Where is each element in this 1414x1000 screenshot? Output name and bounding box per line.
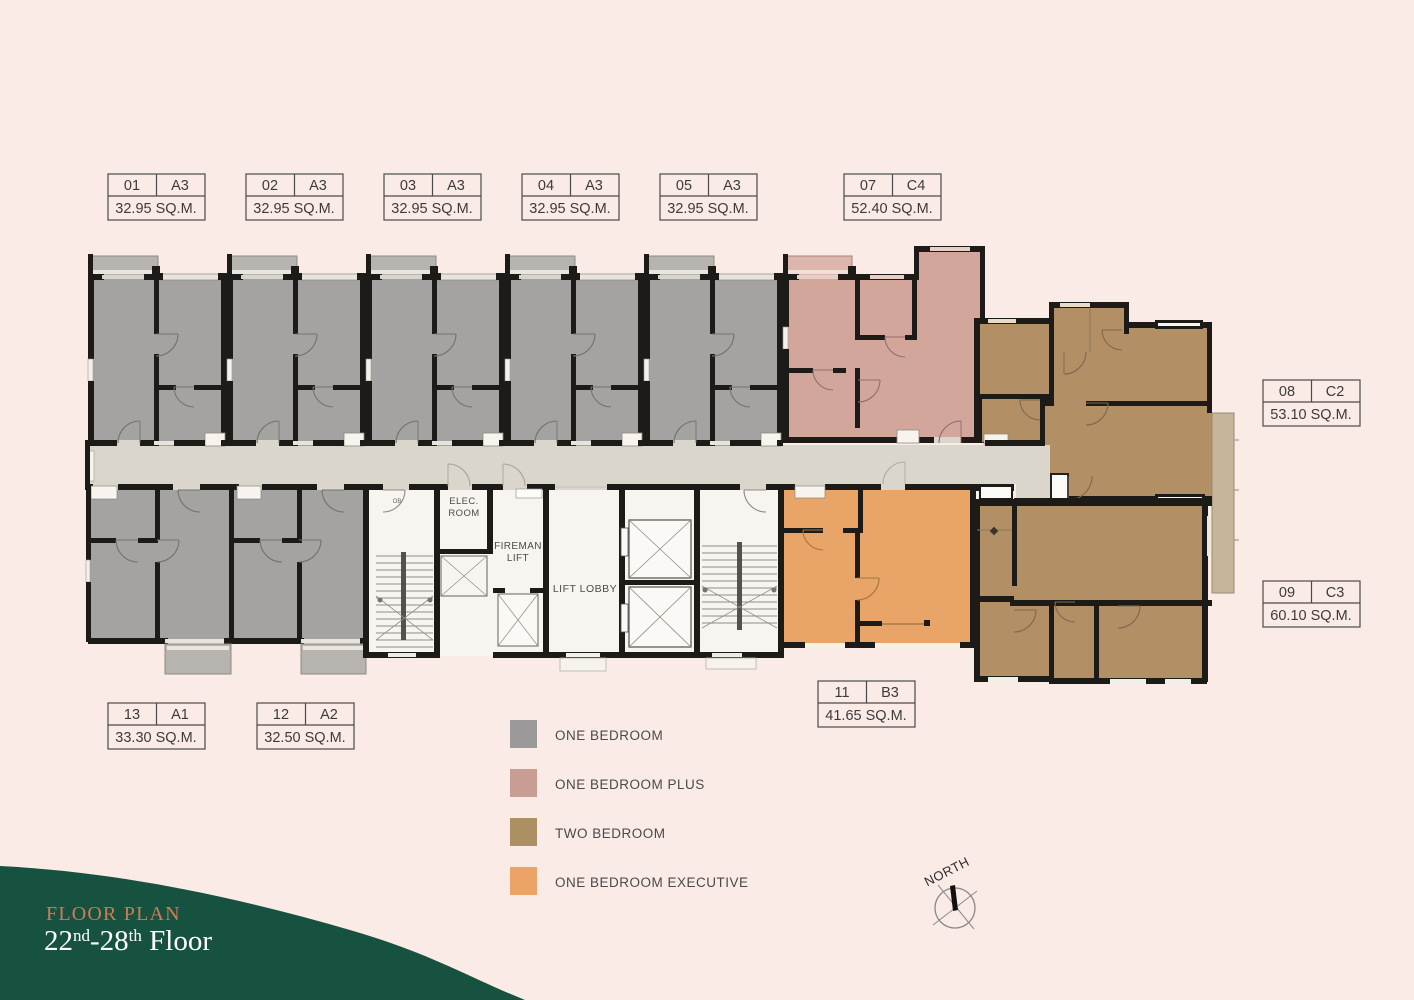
svg-text:53.10 SQ.M.: 53.10 SQ.M. [1270,407,1351,423]
svg-text:60.10 SQ.M.: 60.10 SQ.M. [1270,608,1351,624]
svg-text:C3: C3 [1326,585,1345,601]
svg-text:02: 02 [262,178,278,194]
svg-text:ROOM: ROOM [448,508,479,519]
svg-text:41.65 SQ.M.: 41.65 SQ.M. [825,708,906,724]
svg-text:05: 05 [676,178,692,194]
svg-text:32.50 SQ.M.: 32.50 SQ.M. [264,730,345,746]
svg-text:52.40 SQ.M.: 52.40 SQ.M. [851,201,932,217]
svg-text:TWO BEDROOM: TWO BEDROOM [555,826,666,841]
svg-text:ELEC.: ELEC. [449,496,478,507]
svg-text:A3: A3 [171,178,189,194]
svg-text:13: 13 [124,707,140,723]
svg-text:A3: A3 [309,178,327,194]
svg-text:33.30 SQ.M.: 33.30 SQ.M. [115,730,196,746]
svg-text:FIREMAN: FIREMAN [494,541,542,552]
svg-text:32.95 SQ.M.: 32.95 SQ.M. [667,201,748,217]
svg-text:A3: A3 [585,178,603,194]
svg-text:A2: A2 [320,707,338,723]
svg-text:FLOOR PLAN: FLOOR PLAN [46,903,181,925]
svg-text:A3: A3 [447,178,465,194]
svg-text:32.95 SQ.M.: 32.95 SQ.M. [115,201,196,217]
svg-text:ONE BEDROOM EXECUTIVE: ONE BEDROOM EXECUTIVE [555,875,749,890]
svg-text:03: 03 [400,178,416,194]
svg-text:ONE BEDROOM: ONE BEDROOM [555,728,663,743]
svg-text:A3: A3 [723,178,741,194]
svg-text:32.95 SQ.M.: 32.95 SQ.M. [529,201,610,217]
svg-text:LIFT LOBBY: LIFT LOBBY [553,583,617,595]
svg-text:01: 01 [124,178,140,194]
svg-text:A1: A1 [171,707,189,723]
svg-text:ONE BEDROOM PLUS: ONE BEDROOM PLUS [555,777,705,792]
svg-text:04: 04 [538,178,554,194]
svg-text:C2: C2 [1326,384,1345,400]
svg-text:08: 08 [1279,384,1295,400]
svg-text:LIFT: LIFT [507,553,529,564]
svg-text:07: 07 [860,178,876,194]
svg-text:22nd-28th Floor: 22nd-28th Floor [44,925,212,957]
svg-text:C4: C4 [907,178,926,194]
svg-text:32.95 SQ.M.: 32.95 SQ.M. [253,201,334,217]
svg-text:12: 12 [273,707,289,723]
svg-text:11: 11 [834,685,849,701]
svg-text:OB: OB [393,499,402,505]
svg-text:09: 09 [1279,585,1295,601]
svg-text:B3: B3 [881,685,899,701]
svg-text:32.95 SQ.M.: 32.95 SQ.M. [391,201,472,217]
